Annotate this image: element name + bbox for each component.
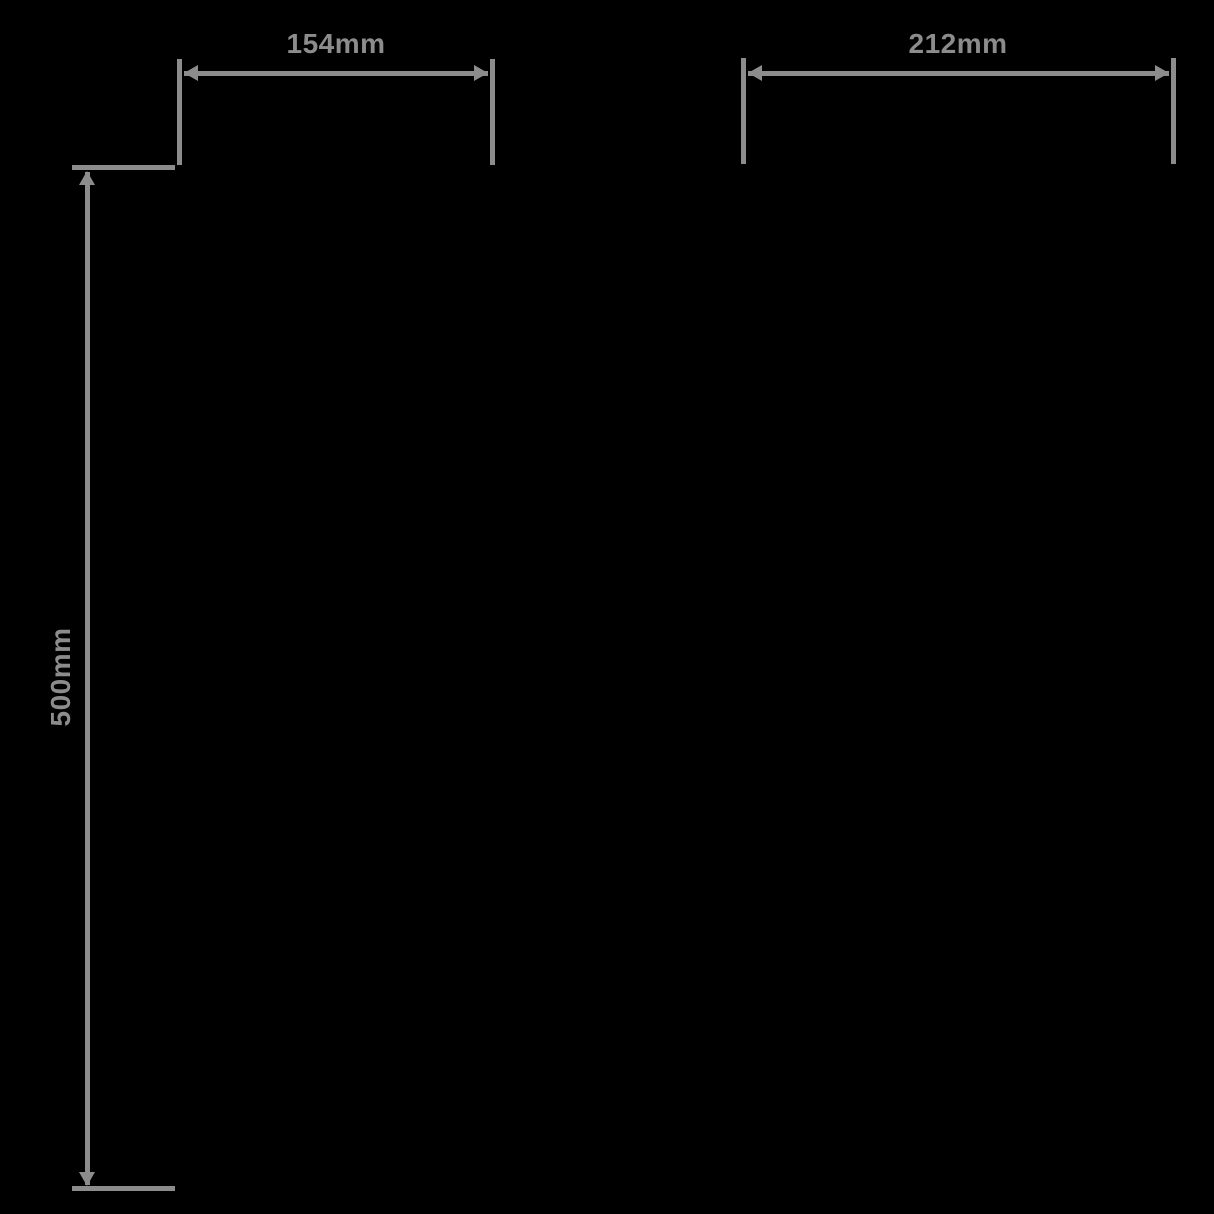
extension-tick-left: [177, 59, 182, 165]
extension-tick-right: [490, 59, 495, 165]
arrow-right-icon: [1155, 65, 1169, 81]
arrow-left-icon: [748, 65, 762, 81]
dimension-diagram: 154mm 212mm 500mm: [0, 0, 1214, 1214]
dimension-label-212mm: 212mm: [908, 30, 1007, 58]
extension-tick-left: [741, 58, 746, 164]
extension-tick-top: [72, 165, 175, 170]
dimension-line: [184, 71, 488, 76]
arrow-right-icon: [474, 65, 488, 81]
arrow-left-icon: [184, 65, 198, 81]
extension-tick-right: [1171, 58, 1176, 164]
dimension-label-500mm: 500mm: [47, 627, 75, 726]
arrow-up-icon: [79, 171, 95, 185]
dimension-label-154mm: 154mm: [286, 30, 385, 58]
dimension-line: [748, 71, 1169, 76]
extension-tick-bottom: [72, 1186, 175, 1191]
dimension-line: [85, 172, 90, 1185]
arrow-down-icon: [79, 1172, 95, 1186]
